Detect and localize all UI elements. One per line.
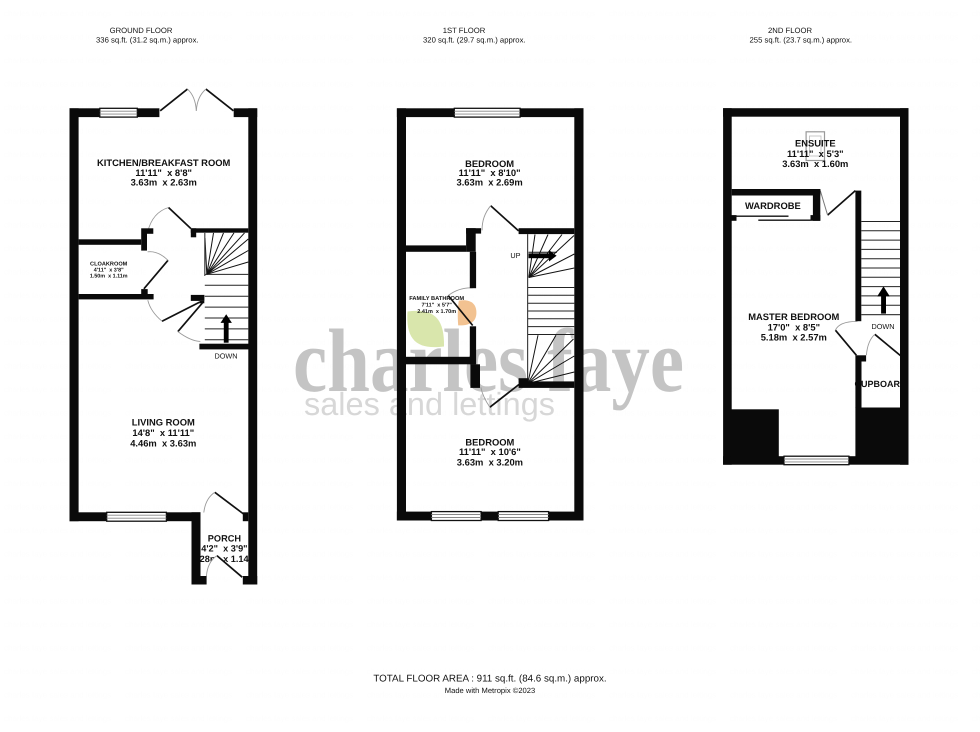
- svg-text:LIVING ROOM: LIVING ROOM: [132, 417, 195, 428]
- svg-text:DOWN: DOWN: [871, 322, 894, 331]
- svg-text:FAMILY BATHROOM: FAMILY BATHROOM: [409, 296, 464, 302]
- svg-text:2.41m x 1.70m: 2.41m x 1.70m: [417, 309, 456, 315]
- svg-text:1.50m x 1.11m: 1.50m x 1.11m: [90, 273, 128, 279]
- svg-text:MASTER BEDROOM: MASTER BEDROOM: [748, 311, 839, 322]
- svg-text:320 sq.ft. (29.7 sq.m.) approx: 320 sq.ft. (29.7 sq.m.) approx.: [423, 36, 526, 45]
- svg-text:4'2" x 3'9": 4'2" x 3'9": [201, 544, 247, 554]
- svg-text:Made with Metropix ©2023: Made with Metropix ©2023: [445, 686, 535, 695]
- svg-text:255 sq.ft. (23.7 sq.m.) approx: 255 sq.ft. (23.7 sq.m.) approx.: [750, 36, 853, 45]
- svg-text:3.63m x 2.63m: 3.63m x 2.63m: [131, 177, 197, 188]
- svg-text:3.63m x 1.60m: 3.63m x 1.60m: [782, 158, 848, 169]
- svg-text:1ST FLOOR: 1ST FLOOR: [443, 26, 486, 35]
- svg-text:3.63m x 2.69m: 3.63m x 2.69m: [456, 177, 522, 188]
- svg-text:ENSUITE: ENSUITE: [795, 137, 836, 148]
- svg-text:CUPBOARD: CUPBOARD: [854, 379, 907, 389]
- svg-text:7'11" x 5'7": 7'11" x 5'7": [421, 302, 452, 308]
- svg-text:336 sq.ft. (31.2 sq.m.) approx: 336 sq.ft. (31.2 sq.m.) approx.: [96, 36, 199, 45]
- svg-text:PORCH: PORCH: [208, 534, 242, 544]
- svg-text:TOTAL FLOOR AREA : 911 sq.ft.: TOTAL FLOOR AREA : 911 sq.ft. (84.6 sq.m…: [373, 674, 606, 685]
- svg-text:UP: UP: [510, 251, 520, 260]
- svg-text:GROUND FLOOR: GROUND FLOOR: [110, 26, 173, 35]
- svg-text:2ND FLOOR: 2ND FLOOR: [768, 26, 812, 35]
- svg-text:14'8" x 11'11": 14'8" x 11'11": [132, 427, 194, 438]
- svg-text:DOWN: DOWN: [214, 352, 237, 361]
- svg-text:4.46m x 3.63m: 4.46m x 3.63m: [130, 438, 196, 449]
- svg-text:3.63m x 3.20m: 3.63m x 3.20m: [457, 456, 523, 467]
- svg-text:WARDROBE: WARDROBE: [745, 200, 801, 211]
- svg-text:5.18m x 2.57m: 5.18m x 2.57m: [761, 332, 827, 343]
- svg-text:sales and lettings: sales and lettings: [304, 386, 555, 422]
- svg-text:CLOAKROOM: CLOAKROOM: [90, 261, 128, 267]
